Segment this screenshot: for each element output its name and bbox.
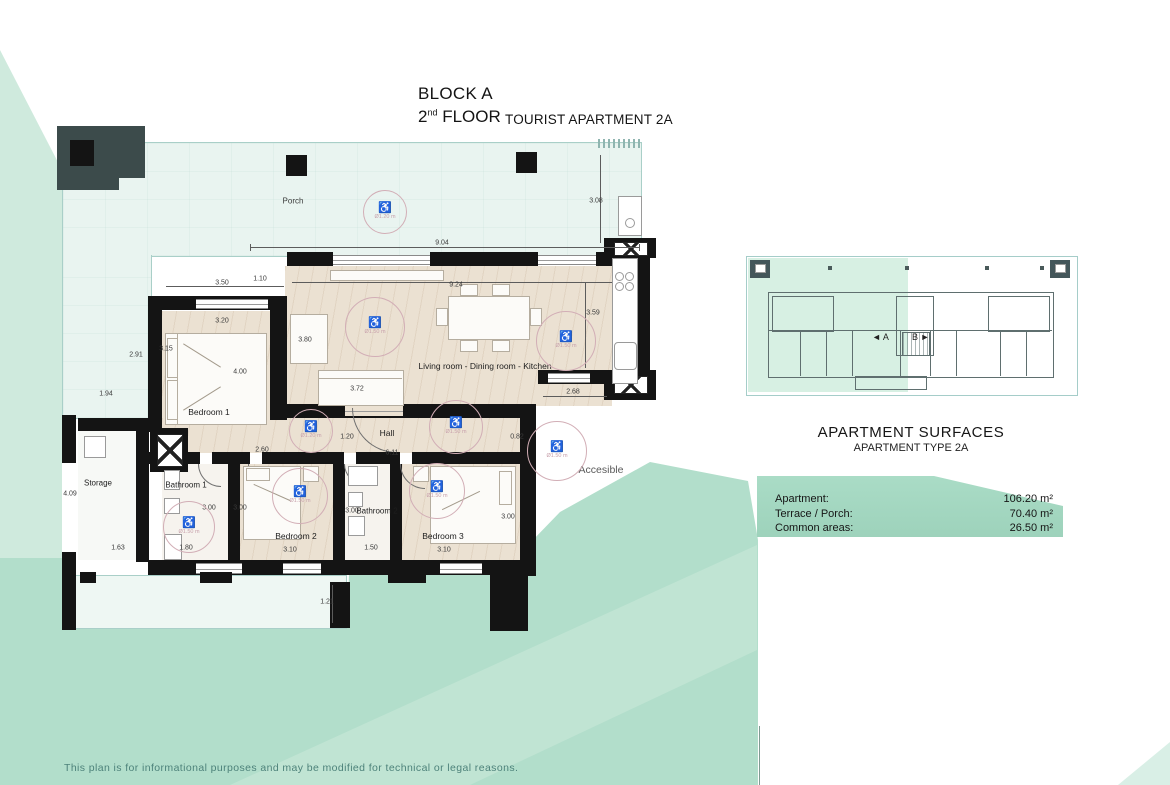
- dining-chair: [492, 340, 510, 352]
- surfaces-row-label: Apartment:: [775, 493, 829, 505]
- keyplan-porch-stub: [855, 376, 927, 390]
- window: [196, 299, 268, 309]
- accessibility-circle: ♿Ø1.50 m: [527, 421, 587, 481]
- wall: [262, 452, 344, 464]
- porch-column: [516, 152, 537, 173]
- column: [388, 572, 426, 583]
- dim-line: [250, 247, 640, 248]
- porch-sink: [618, 196, 642, 236]
- wall: [62, 415, 76, 463]
- dimension-label: 3.15: [159, 346, 173, 353]
- wheelchair-icon: ♿: [182, 518, 196, 529]
- dimension-label: 3.08: [589, 198, 603, 205]
- wall: [333, 464, 345, 562]
- hob-burner: [615, 272, 624, 281]
- dining-table: [448, 296, 530, 340]
- room-label-bedroom2: Bedroom 2: [275, 531, 317, 541]
- surfaces-row: Common areas:26.50 m²: [775, 522, 1053, 534]
- dimension-label: 0.82: [510, 434, 524, 441]
- dimension-label: 1.20: [340, 434, 354, 441]
- keyplan-partition: [852, 330, 853, 376]
- keyplan-wing: [988, 296, 1050, 332]
- dimension-label: 3.00: [501, 514, 515, 521]
- dimension-label: 1.10: [253, 276, 267, 283]
- surfaces-row-label: Terrace / Porch:: [775, 508, 853, 520]
- radius-label: Ø1.50 m: [426, 493, 447, 500]
- divider-line: [759, 726, 760, 785]
- dimension-label: 9.24: [449, 282, 463, 289]
- porch-floor: [62, 142, 642, 257]
- accessibility-circle: ♿Ø1.20 m: [289, 409, 333, 453]
- wall: [287, 252, 333, 266]
- window: [440, 563, 482, 574]
- wall: [412, 452, 534, 464]
- window: [538, 255, 596, 265]
- accessibility-circle: ♿Ø1.20 m: [363, 190, 407, 234]
- wheelchair-icon: ♿: [430, 482, 444, 493]
- dimension-label: 2.68: [566, 389, 580, 396]
- surfaces-row-value: 26.50 m²: [1010, 522, 1053, 534]
- wall: [212, 452, 250, 464]
- wheelchair-icon: ♿: [550, 442, 564, 453]
- dimension-label: 4.00: [233, 369, 247, 376]
- dimension-label: 9.04: [435, 240, 449, 247]
- dining-chair: [492, 284, 510, 296]
- dimension-label: 1.50: [364, 545, 378, 552]
- radius-label: Ø1.50 m: [445, 429, 466, 436]
- radius-label: Ø1.20 m: [300, 433, 321, 440]
- radius-label: Ø1.50 m: [289, 498, 310, 505]
- radius-label: Ø1.50 m: [555, 343, 576, 350]
- keyplan-corner-inner: [1055, 264, 1066, 273]
- porch-hatch: [598, 139, 642, 148]
- dimension-label: 2.91: [129, 352, 143, 359]
- tv-console: [330, 270, 444, 281]
- hob-burner: [625, 282, 634, 291]
- dimension-label: 3.50: [215, 280, 229, 287]
- keyplan-label-a: ◄ A: [872, 332, 889, 342]
- dimension-label: 1.21: [320, 599, 334, 606]
- accessibility-circle: ♿Ø1.50 m: [536, 311, 596, 371]
- window: [333, 255, 430, 265]
- surfaces-subtitle: APARTMENT TYPE 2A: [756, 442, 1066, 454]
- bed3-pillow: [499, 471, 512, 505]
- dining-chair: [436, 308, 448, 326]
- bottom-terrace-floor: [62, 575, 347, 629]
- dimension-label: 1.94: [99, 391, 113, 398]
- wheelchair-icon: ♿: [449, 418, 463, 429]
- block-title: BLOCK A: [418, 84, 501, 104]
- dim-tick: [639, 244, 640, 251]
- accessibility-circle: ♿Ø1.50 m: [163, 501, 215, 553]
- room-label-porch: Porch: [283, 197, 304, 206]
- room-label-bathroom2: Bathroom 2: [356, 507, 397, 516]
- keyplan-partition: [800, 330, 801, 376]
- surfaces-row-label: Common areas:: [775, 522, 853, 534]
- window: [283, 563, 321, 574]
- wheelchair-icon: ♿: [304, 422, 318, 433]
- elevator-icon: [157, 434, 183, 467]
- accessibility-circle: ♿Ø1.50 m: [345, 297, 405, 357]
- dimension-label: 3.00: [233, 505, 247, 512]
- floor-ordinal: nd: [427, 107, 437, 117]
- porch-sink-bowl: [625, 218, 635, 228]
- dimension-label: 3.59: [586, 310, 600, 317]
- radius-label: Ø1.50 m: [364, 329, 385, 336]
- column: [80, 572, 96, 583]
- room-label-hall: Hall: [380, 428, 395, 438]
- dim-tick: [250, 244, 251, 251]
- room-label-living: Living room - Dining room - Kitchen: [418, 361, 551, 371]
- column: [200, 572, 232, 583]
- wall: [62, 552, 76, 630]
- keyplan-column-dot: [905, 266, 909, 270]
- dimension-label: 4.09: [63, 491, 77, 498]
- surfaces-row: Apartment:106.20 m²: [775, 493, 1053, 505]
- wall: [430, 252, 538, 266]
- surfaces-row-value: 106.20 m²: [1003, 493, 1053, 505]
- plan-title: BLOCK A 2nd FLOOR: [418, 84, 501, 127]
- storage-unit: [84, 436, 106, 458]
- porch-column: [286, 155, 307, 176]
- dimension-label: 2.60: [255, 447, 269, 454]
- dining-chair: [460, 340, 478, 352]
- radius-label: Ø1.20 m: [374, 214, 395, 221]
- wheelchair-icon: ♿: [378, 203, 392, 214]
- shaft-window: [614, 242, 648, 256]
- room-label-storage: Storage: [84, 479, 112, 488]
- dimension-label: 3.72: [350, 386, 364, 393]
- sofa-back-line: [318, 378, 402, 379]
- dimension-label: 3.80: [298, 337, 312, 344]
- room-label-bedroom3: Bedroom 3: [422, 531, 464, 541]
- floor-title: 2nd FLOOR: [418, 107, 501, 127]
- accessible-label: Accesible: [579, 464, 624, 476]
- wheelchair-icon: ♿: [559, 332, 573, 343]
- radius-label: Ø1.50 m: [178, 529, 199, 536]
- stair-column: [70, 140, 94, 166]
- surfaces-title: APARTMENT SURFACES: [756, 424, 1066, 441]
- wheelchair-icon: ♿: [368, 318, 382, 329]
- keyplan-partition: [1026, 330, 1027, 376]
- keyplan-label-b: B ►: [912, 332, 929, 342]
- washbasin: [348, 492, 363, 507]
- dimension-label: 3.00: [345, 508, 359, 515]
- floor-word: FLOOR: [437, 107, 500, 126]
- dim-line: [543, 396, 607, 397]
- keyplan-column-dot: [985, 266, 989, 270]
- keyplan-column-dot: [1040, 266, 1044, 270]
- surfaces-row: Terrace / Porch:70.40 m²: [775, 508, 1053, 520]
- room-label-bedroom1: Bedroom 1: [188, 407, 230, 417]
- wall: [228, 464, 240, 562]
- wall: [270, 296, 287, 420]
- surfaces-row-value: 70.40 m²: [1010, 508, 1053, 520]
- dimension-label: 3.10: [283, 547, 297, 554]
- floor-plan-page: { "title": { "block": "BLOCK A", "floor_…: [0, 0, 1170, 785]
- keyplan-partition: [826, 330, 827, 376]
- wall: [148, 296, 162, 432]
- dimension-label: 3.20: [215, 318, 229, 325]
- toilet: [348, 516, 365, 536]
- hob-burner: [615, 282, 624, 291]
- disclaimer-text: This plan is for informational purposes …: [64, 762, 518, 774]
- column: [490, 575, 528, 631]
- keyplan-column-dot: [828, 266, 832, 270]
- wall: [136, 430, 149, 562]
- room-label-bathroom1: Bathroom 1: [165, 481, 206, 490]
- accessibility-circle: ♿Ø1.50 m: [409, 463, 465, 519]
- dimension-label: 1.63: [111, 545, 125, 552]
- accessibility-circle: ♿Ø1.50 m: [429, 400, 483, 454]
- radius-label: Ø1.50 m: [546, 453, 567, 460]
- bed2-pillow: [246, 468, 270, 481]
- wheelchair-icon: ♿: [293, 487, 307, 498]
- kitchen-sink: [614, 342, 637, 370]
- window: [548, 373, 590, 383]
- keyplan-partition: [956, 330, 957, 376]
- wall: [520, 404, 536, 576]
- shower: [348, 466, 378, 486]
- dimension-label: 3.10: [437, 547, 451, 554]
- hob-burner: [625, 272, 634, 281]
- apartment-title: TOURIST APARTMENT 2A: [505, 112, 673, 127]
- keyplan-partition: [1000, 330, 1001, 376]
- keyplan-wing: [772, 296, 834, 332]
- accessibility-circle: ♿Ø1.50 m: [272, 468, 328, 524]
- dimension-label: 6.11: [385, 450, 398, 457]
- keyplan-corner-inner: [755, 264, 766, 273]
